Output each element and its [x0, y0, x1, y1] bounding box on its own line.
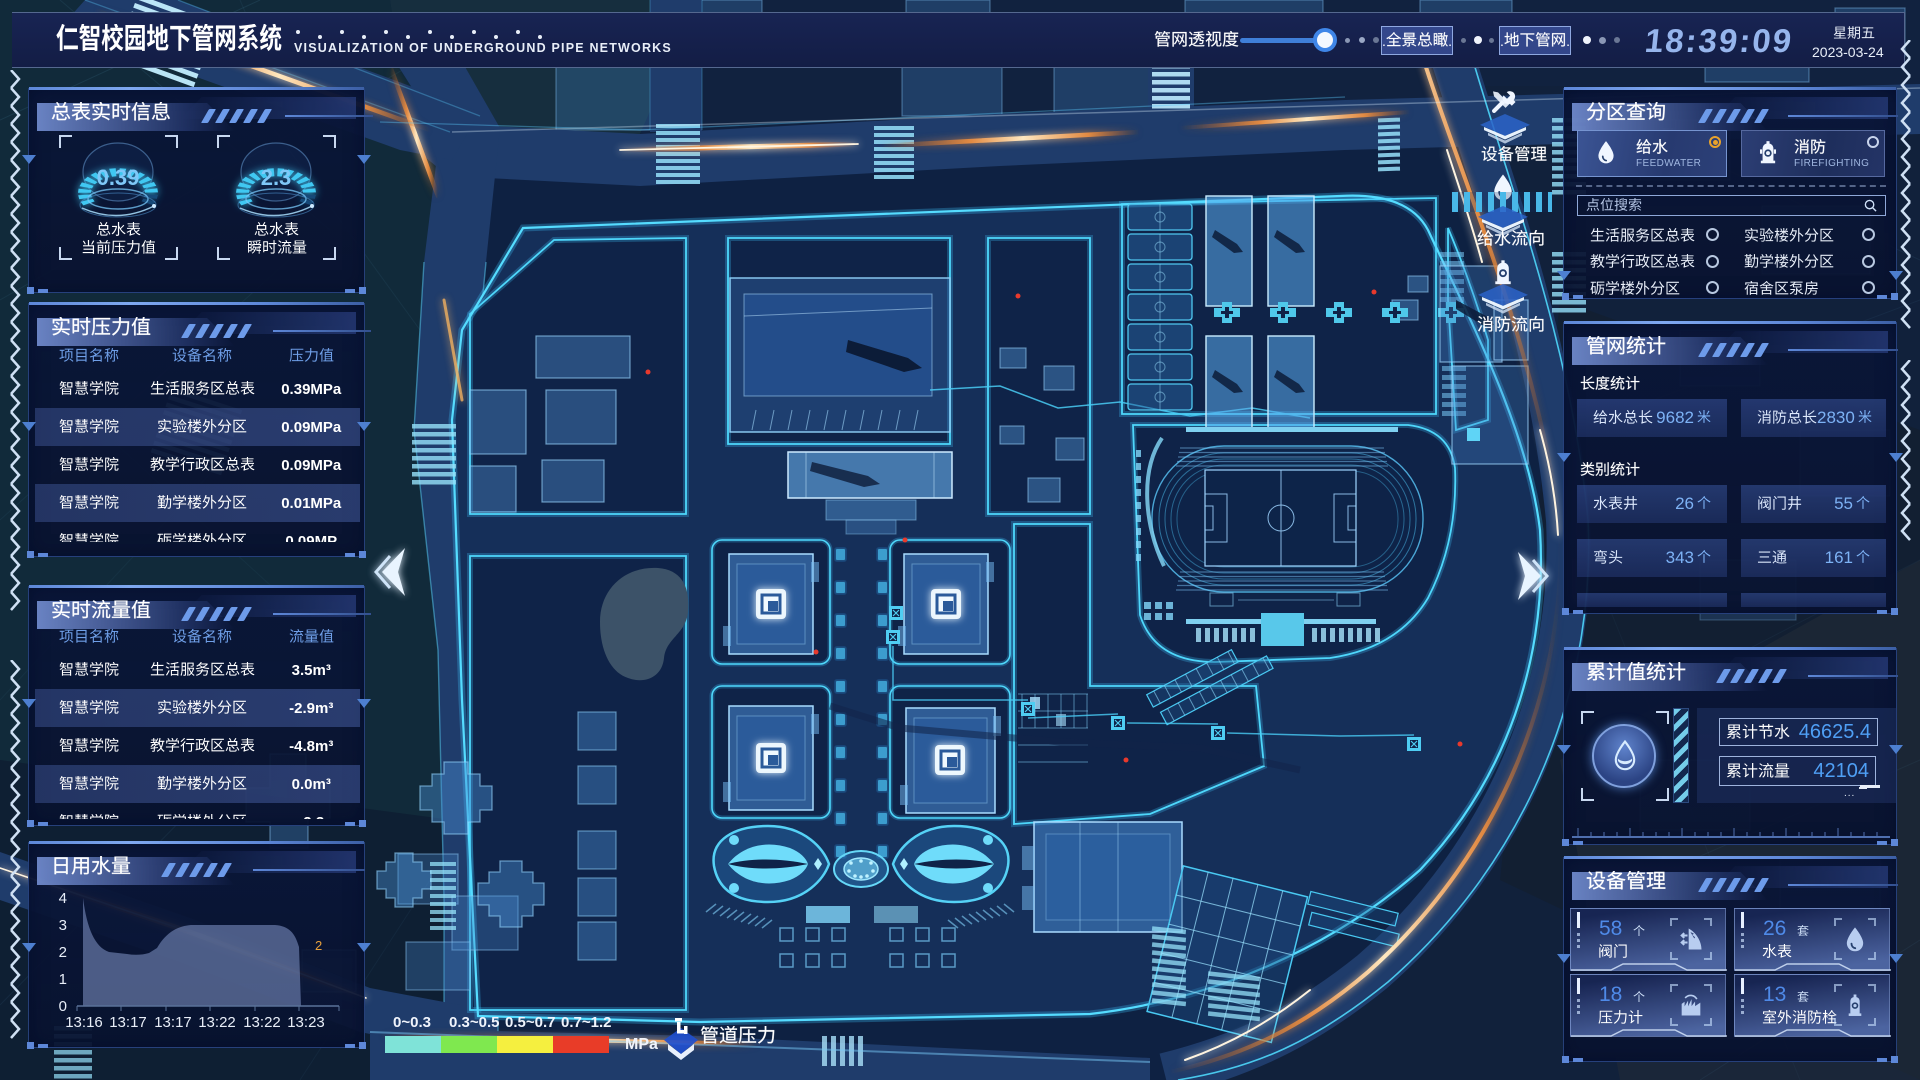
svg-text:13:22: 13:22: [198, 1014, 236, 1031]
svg-text:2: 2: [59, 944, 67, 961]
svg-text:13:23: 13:23: [287, 1014, 325, 1031]
svg-text:0: 0: [59, 998, 67, 1015]
svg-text:13:17: 13:17: [154, 1014, 192, 1031]
svg-text:2.3: 2.3: [261, 165, 292, 190]
svg-text:13:22: 13:22: [243, 1014, 281, 1031]
svg-text:13:17: 13:17: [109, 1014, 147, 1031]
svg-text:1: 1: [59, 971, 67, 988]
svg-text:3: 3: [59, 917, 67, 934]
svg-text:4: 4: [59, 890, 67, 907]
svg-text:2: 2: [315, 938, 322, 953]
svg-text:13:16: 13:16: [65, 1014, 103, 1031]
svg-text:0.39: 0.39: [97, 165, 140, 190]
